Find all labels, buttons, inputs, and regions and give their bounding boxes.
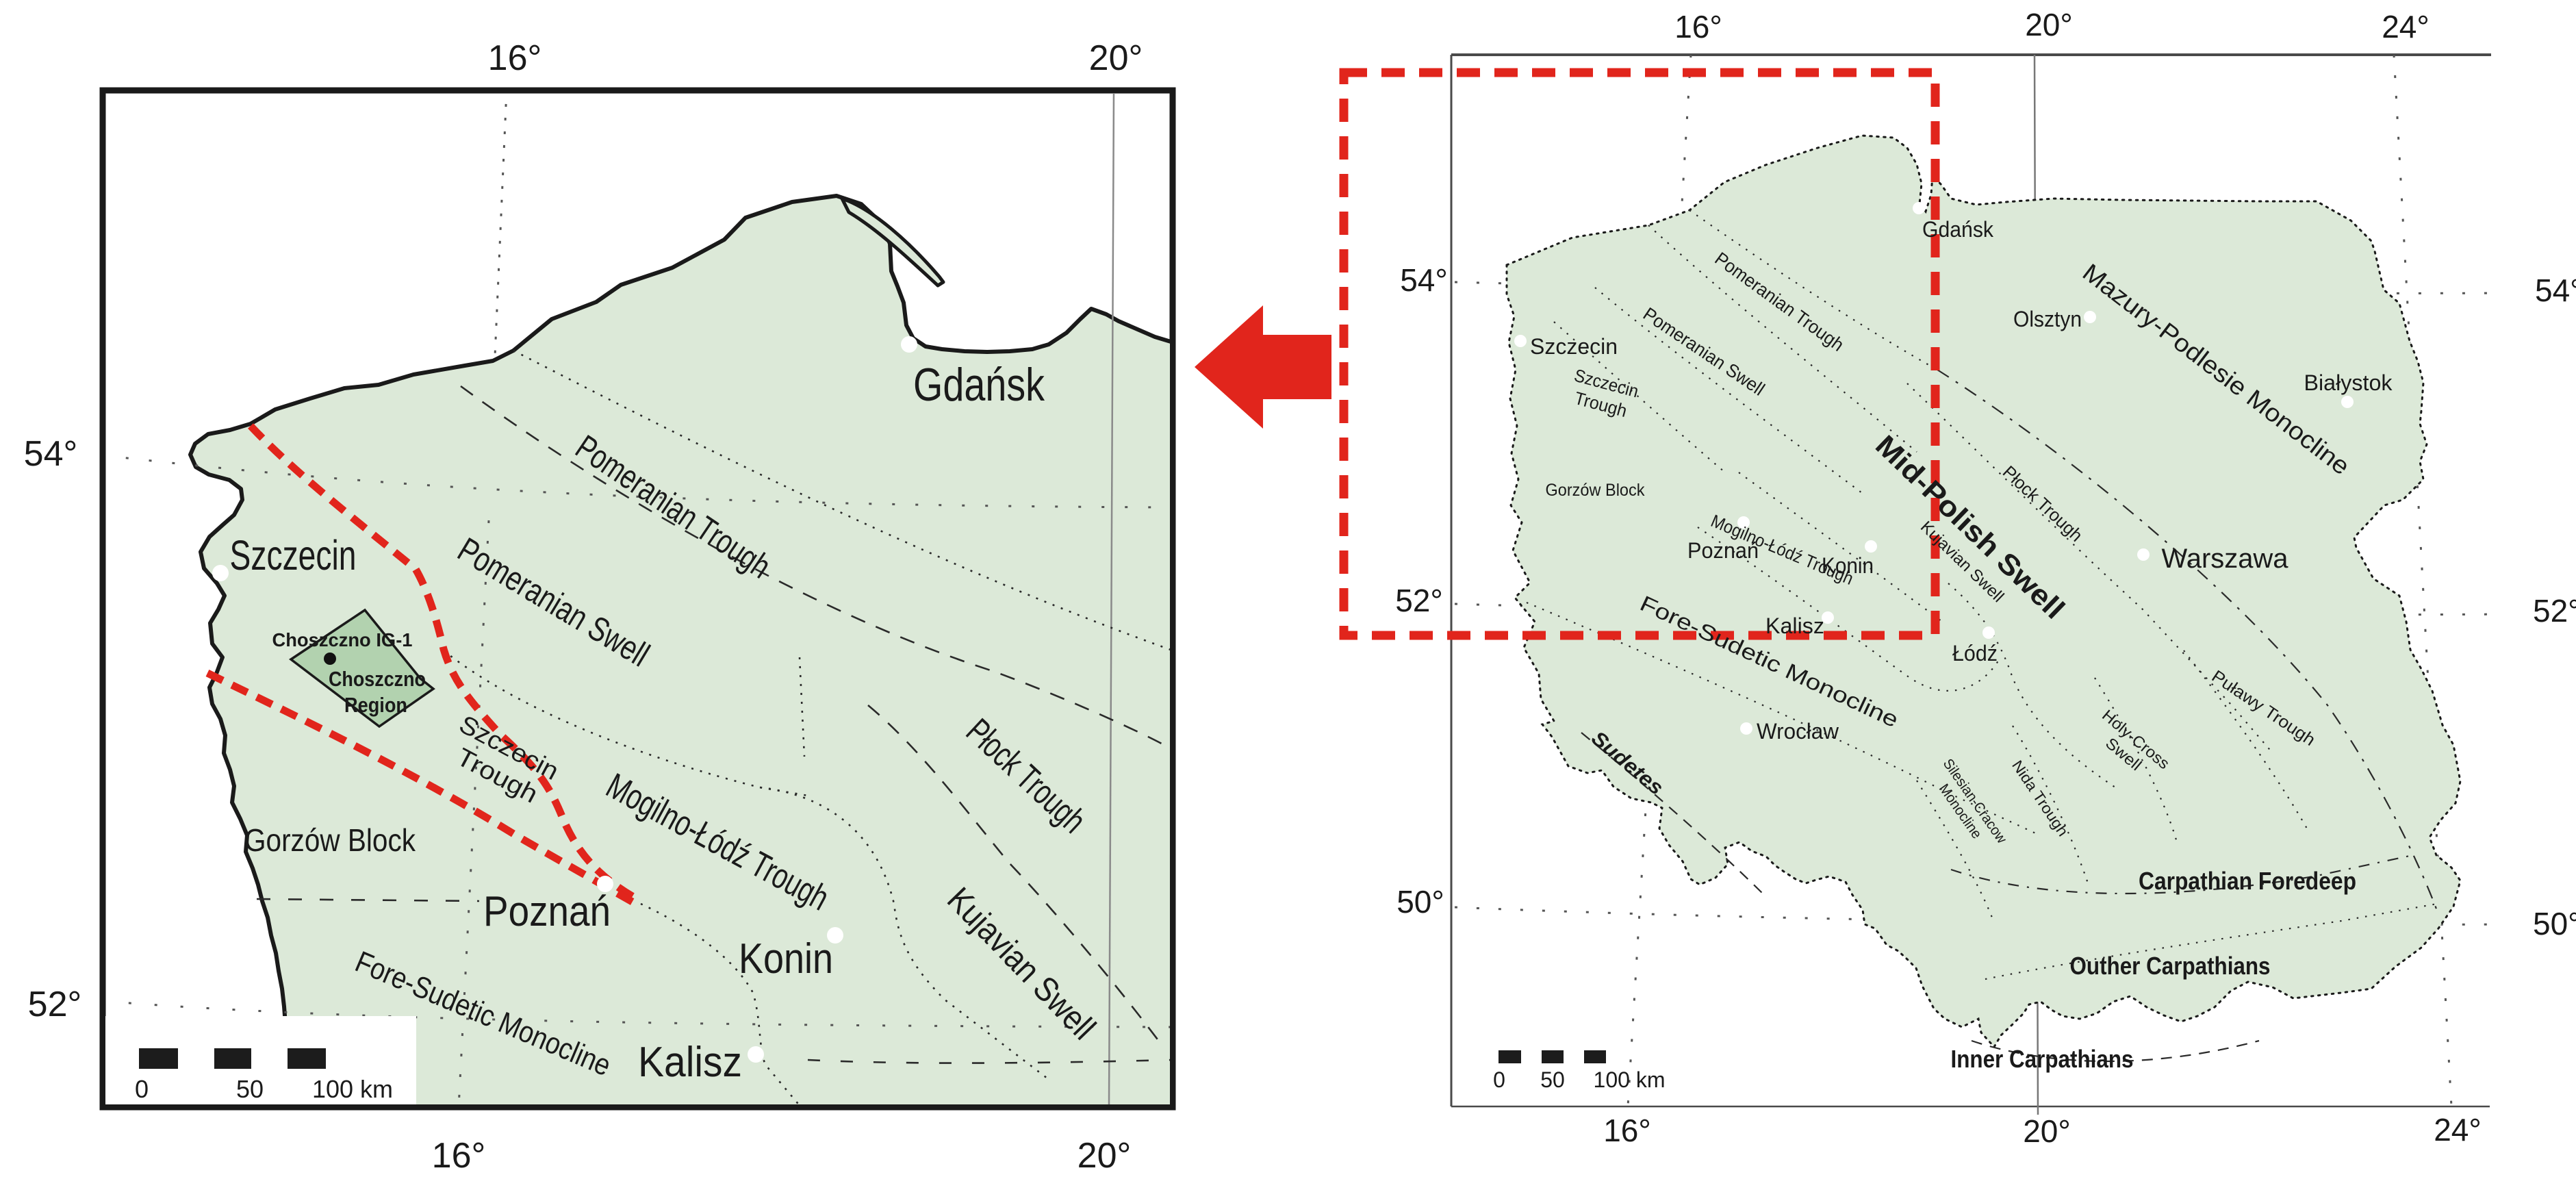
svg-text:Łódź: Łódź: [1952, 641, 1998, 666]
svg-text:100 km: 100 km: [1594, 1067, 1666, 1092]
svg-text:50: 50: [1540, 1067, 1565, 1092]
svg-text:Konin: Konin: [739, 935, 833, 983]
svg-text:54°: 54°: [24, 434, 78, 474]
svg-text:Gdańsk: Gdańsk: [913, 359, 1045, 411]
svg-text:24°: 24°: [2382, 9, 2430, 45]
svg-text:Gorzów Block: Gorzów Block: [244, 822, 416, 858]
svg-text:54°: 54°: [1400, 262, 1448, 298]
svg-text:Gorzów Block: Gorzów Block: [1546, 481, 1645, 500]
svg-text:Choszczno IG-1: Choszczno IG-1: [272, 629, 413, 650]
svg-text:16°: 16°: [432, 1136, 486, 1176]
svg-text:24°: 24°: [2434, 1112, 2482, 1148]
svg-text:Olsztyn: Olsztyn: [2013, 307, 2082, 331]
svg-text:52°: 52°: [2533, 593, 2576, 629]
svg-text:16°: 16°: [1603, 1113, 1651, 1148]
svg-text:50°: 50°: [2533, 906, 2576, 941]
svg-text:Carpathian Foredeep: Carpathian Foredeep: [2139, 867, 2356, 895]
svg-text:20°: 20°: [1077, 1136, 1132, 1176]
svg-text:20°: 20°: [2023, 1113, 2071, 1149]
svg-text:Inner Carpathians: Inner Carpathians: [1951, 1045, 2134, 1073]
svg-text:100 km: 100 km: [312, 1075, 393, 1103]
svg-text:16°: 16°: [1674, 9, 1722, 45]
svg-text:52°: 52°: [28, 985, 82, 1024]
svg-text:Szczecin: Szczecin: [1530, 334, 1618, 359]
svg-text:20°: 20°: [1089, 38, 1143, 78]
svg-text:50: 50: [236, 1075, 264, 1103]
svg-text:20°: 20°: [2025, 7, 2073, 42]
svg-text:Gdańsk: Gdańsk: [1922, 217, 1994, 242]
svg-text:Szczecin: Szczecin: [230, 532, 357, 579]
svg-text:0: 0: [1493, 1067, 1505, 1092]
svg-text:Poznań: Poznań: [483, 888, 611, 935]
svg-text:0: 0: [135, 1075, 149, 1103]
svg-text:Wrocław: Wrocław: [1757, 719, 1839, 744]
svg-text:Warszawa: Warszawa: [2162, 544, 2289, 574]
svg-text:54°: 54°: [2535, 273, 2576, 308]
svg-text:Białystok: Białystok: [2304, 370, 2393, 395]
svg-text:Choszczno: Choszczno: [329, 667, 426, 691]
svg-text:Kalisz: Kalisz: [1765, 613, 1824, 638]
svg-text:Region: Region: [344, 693, 407, 717]
svg-text:Kalisz: Kalisz: [638, 1039, 742, 1086]
svg-text:16°: 16°: [488, 38, 542, 78]
svg-text:50°: 50°: [1397, 884, 1444, 920]
svg-text:Outher Carpathians: Outher Carpathians: [2070, 952, 2271, 980]
svg-text:52°: 52°: [1395, 583, 1443, 618]
